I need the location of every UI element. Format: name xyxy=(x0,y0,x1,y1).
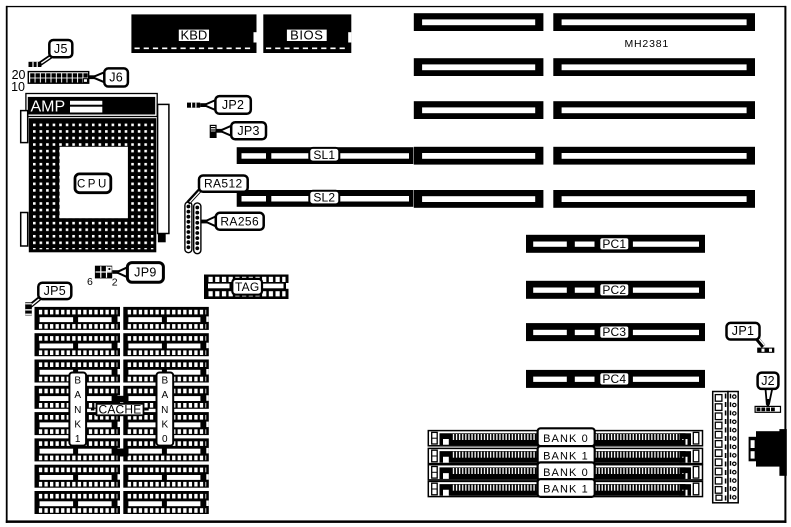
svg-text:MH2381: MH2381 xyxy=(625,38,670,50)
svg-text:BANK 1: BANK 1 xyxy=(543,451,589,463)
svg-text:J6: J6 xyxy=(109,71,123,85)
svg-text:CPU: CPU xyxy=(77,178,109,190)
svg-text:B: B xyxy=(74,376,81,387)
svg-text:CACHE: CACHE xyxy=(98,402,141,416)
svg-text:RA512: RA512 xyxy=(204,177,243,191)
svg-text:JP3: JP3 xyxy=(237,124,259,138)
svg-text:10: 10 xyxy=(11,80,25,94)
svg-text:PC3: PC3 xyxy=(602,325,626,339)
svg-text:JP2: JP2 xyxy=(222,98,244,112)
svg-text:JP5: JP5 xyxy=(44,284,66,298)
svg-text:K: K xyxy=(74,419,81,430)
svg-text:B: B xyxy=(161,376,168,387)
svg-text:6: 6 xyxy=(87,276,93,288)
svg-text:PC2: PC2 xyxy=(602,283,626,297)
svg-text:K: K xyxy=(161,419,168,430)
svg-text:J5: J5 xyxy=(54,42,68,56)
svg-text:RA256: RA256 xyxy=(220,214,259,228)
svg-text:A: A xyxy=(161,390,168,401)
svg-text:J2: J2 xyxy=(761,374,775,388)
svg-text:AMP: AMP xyxy=(31,99,66,116)
svg-text:PC4: PC4 xyxy=(602,372,626,386)
svg-text:BANK 0: BANK 0 xyxy=(543,467,589,479)
svg-text:1: 1 xyxy=(75,434,81,445)
svg-text:SL1: SL1 xyxy=(313,148,335,162)
svg-text:SL2: SL2 xyxy=(313,191,335,205)
svg-text:N: N xyxy=(74,405,81,416)
svg-text:A: A xyxy=(74,390,81,401)
svg-text:KBD: KBD xyxy=(181,27,208,42)
svg-text:BIOS: BIOS xyxy=(290,27,323,42)
svg-text:PC1: PC1 xyxy=(602,237,626,251)
svg-text:JP1: JP1 xyxy=(732,324,754,338)
svg-text:0: 0 xyxy=(162,434,168,445)
svg-text:N: N xyxy=(161,405,168,416)
svg-text:BANK 0: BANK 0 xyxy=(543,433,589,445)
svg-text:TAG: TAG xyxy=(235,280,259,294)
svg-text:2: 2 xyxy=(112,277,118,289)
svg-text:JP9: JP9 xyxy=(134,266,156,280)
svg-text:BANK 1: BANK 1 xyxy=(543,484,589,496)
